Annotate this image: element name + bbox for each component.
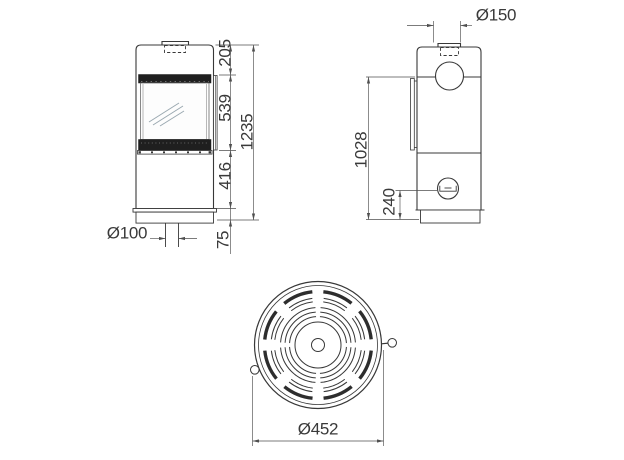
dim-label-inlet-height: 240 — [381, 188, 398, 215]
top-outer-slots — [265, 292, 372, 399]
dim-label-total-height: 1235 — [239, 114, 256, 151]
side-flue-outlet-circle — [436, 62, 464, 90]
dim-label-base-height: 75 — [215, 231, 232, 249]
dim-label-flue-height: 1028 — [353, 132, 370, 169]
top-groove-ring-1 — [281, 308, 356, 383]
top-slot-ring-outer — [271, 298, 365, 392]
dim-label-top-section: 205 — [216, 39, 233, 66]
dim-label-door-height: 539 — [216, 94, 233, 121]
side-air-inlet-circle — [438, 178, 459, 199]
side-view — [411, 44, 485, 224]
top-handle-stem — [382, 343, 389, 344]
top-outer-ring — [255, 282, 382, 409]
dim-label-flue-diameter: Ø150 — [476, 7, 516, 24]
dim-label-floor-duct: Ø100 — [107, 225, 147, 242]
front-door-frame-bottom — [139, 140, 212, 151]
top-handle-knob — [388, 339, 397, 348]
top-center-hole — [312, 339, 325, 352]
side-door-handle — [411, 79, 415, 151]
dim-label-lower-section: 416 — [216, 162, 233, 189]
top-slot-ring-inner — [275, 302, 362, 389]
top-view — [251, 282, 397, 409]
front-view — [133, 42, 217, 248]
top-plate-circle — [295, 322, 341, 368]
drawing-linework — [0, 0, 624, 460]
dim-label-body-diameter: Ø452 — [298, 421, 338, 438]
front-base-lip — [133, 209, 217, 213]
front-base-pedestal — [136, 212, 214, 223]
top-hinge-knob — [251, 366, 260, 375]
side-base-pedestal — [421, 210, 481, 223]
top-second-ring — [259, 286, 378, 405]
top-groove-ring-3 — [290, 317, 347, 374]
stove-technical-drawing: 205 539 1235 416 75 Ø100 Ø150 1028 240 Ø… — [0, 0, 624, 460]
